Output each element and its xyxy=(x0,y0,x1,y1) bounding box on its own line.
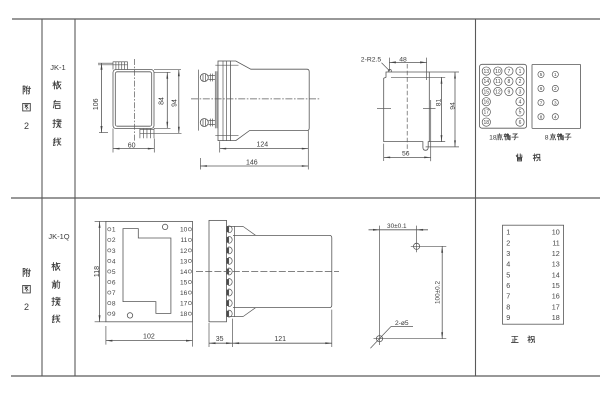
svg-text:17: 17 xyxy=(180,300,188,307)
svg-text:81: 81 xyxy=(435,99,442,107)
svg-text:5: 5 xyxy=(540,72,543,77)
svg-text:8: 8 xyxy=(112,300,116,307)
svg-text:14: 14 xyxy=(180,269,188,276)
svg-text:15: 15 xyxy=(180,279,188,286)
svg-text:1: 1 xyxy=(506,228,510,237)
svg-text:2-ø5: 2-ø5 xyxy=(395,320,409,327)
svg-text:11: 11 xyxy=(495,79,500,85)
svg-text:11: 11 xyxy=(180,237,187,244)
svg-text:JK-1Q: JK-1Q xyxy=(48,232,69,241)
svg-text:12: 12 xyxy=(552,249,560,258)
svg-text:124: 124 xyxy=(256,142,268,149)
svg-text:15: 15 xyxy=(552,281,560,290)
svg-text:17: 17 xyxy=(484,110,490,116)
svg-text:18: 18 xyxy=(484,120,490,126)
svg-text:3: 3 xyxy=(519,89,522,95)
svg-text:16: 16 xyxy=(552,292,560,301)
svg-text:6: 6 xyxy=(540,86,543,91)
svg-text:13: 13 xyxy=(180,258,188,265)
svg-text:2: 2 xyxy=(554,86,557,91)
svg-text:10: 10 xyxy=(180,227,188,234)
svg-text:2: 2 xyxy=(519,79,522,85)
svg-text:8: 8 xyxy=(506,302,510,311)
svg-text:18: 18 xyxy=(180,311,188,318)
svg-text:8: 8 xyxy=(545,135,549,142)
svg-text:15: 15 xyxy=(484,89,490,95)
svg-text:118: 118 xyxy=(94,266,101,277)
svg-text:18: 18 xyxy=(489,135,497,142)
svg-text:100±0.2: 100±0.2 xyxy=(434,281,441,304)
svg-text:11: 11 xyxy=(552,238,559,247)
svg-text:1: 1 xyxy=(519,69,522,75)
svg-text:48: 48 xyxy=(399,56,407,63)
svg-text:35: 35 xyxy=(216,336,224,343)
svg-text:2: 2 xyxy=(506,238,510,247)
svg-text:14: 14 xyxy=(552,270,560,279)
svg-text:6: 6 xyxy=(519,120,522,126)
svg-text:5: 5 xyxy=(112,269,116,276)
svg-text:102: 102 xyxy=(143,333,155,340)
svg-text:16: 16 xyxy=(180,290,188,297)
svg-text:94: 94 xyxy=(449,102,456,110)
svg-text:60: 60 xyxy=(128,143,136,150)
svg-text:4: 4 xyxy=(554,114,557,119)
svg-text:2: 2 xyxy=(24,121,29,131)
svg-text:14: 14 xyxy=(484,79,490,85)
svg-text:18: 18 xyxy=(552,313,560,322)
svg-text:30±0.1: 30±0.1 xyxy=(387,223,407,230)
svg-text:7: 7 xyxy=(112,290,116,297)
svg-text:94: 94 xyxy=(171,99,178,107)
svg-text:12: 12 xyxy=(180,248,188,255)
svg-text:5: 5 xyxy=(519,110,522,116)
svg-text:121: 121 xyxy=(274,336,286,343)
svg-text:7: 7 xyxy=(508,69,511,75)
svg-text:146: 146 xyxy=(246,159,258,166)
svg-text:12: 12 xyxy=(495,89,501,95)
svg-text:7: 7 xyxy=(506,292,510,301)
svg-text:2-R2.5: 2-R2.5 xyxy=(361,57,382,64)
svg-text:2: 2 xyxy=(24,302,29,312)
svg-text:2: 2 xyxy=(112,237,116,244)
svg-text:9: 9 xyxy=(508,89,511,95)
svg-text:JK-1: JK-1 xyxy=(50,63,65,72)
svg-text:7: 7 xyxy=(540,100,543,105)
svg-text:10: 10 xyxy=(495,69,501,75)
svg-text:3: 3 xyxy=(506,249,510,258)
svg-text:9: 9 xyxy=(112,311,116,318)
svg-text:1: 1 xyxy=(112,227,116,234)
svg-text:4: 4 xyxy=(112,258,116,265)
svg-text:84: 84 xyxy=(158,97,165,105)
svg-text:13: 13 xyxy=(552,260,560,269)
svg-text:16: 16 xyxy=(484,100,490,106)
svg-text:8: 8 xyxy=(540,114,543,119)
svg-text:3: 3 xyxy=(554,100,557,105)
svg-text:6: 6 xyxy=(112,279,116,286)
svg-text:9: 9 xyxy=(506,313,510,322)
svg-text:10: 10 xyxy=(552,228,560,237)
svg-text:5: 5 xyxy=(506,270,510,279)
svg-text:4: 4 xyxy=(519,100,522,106)
svg-text:17: 17 xyxy=(552,302,560,311)
svg-text:4: 4 xyxy=(506,260,510,269)
svg-text:56: 56 xyxy=(402,150,410,157)
svg-text:1: 1 xyxy=(554,72,557,77)
svg-text:6: 6 xyxy=(506,281,510,290)
svg-text:13: 13 xyxy=(484,69,490,75)
svg-text:3: 3 xyxy=(112,248,116,255)
svg-text:8: 8 xyxy=(508,79,511,85)
svg-text:106: 106 xyxy=(93,98,100,110)
